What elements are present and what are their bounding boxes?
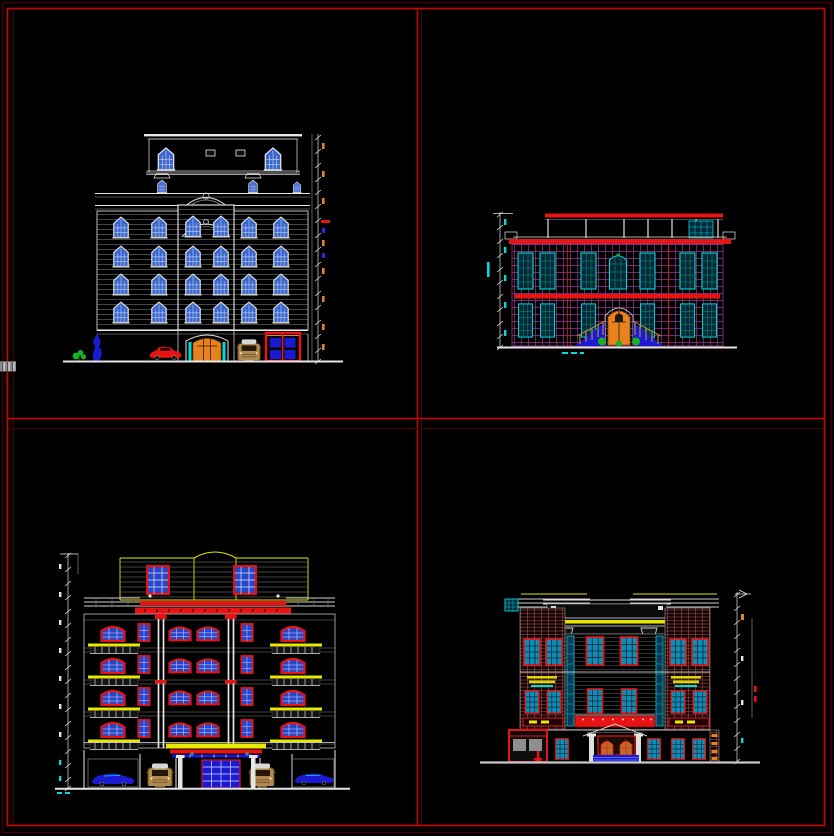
penthouse-window	[147, 566, 169, 594]
parapet-window	[505, 599, 518, 611]
main-body	[84, 614, 335, 750]
blue-car	[92, 774, 134, 786]
mid-band	[515, 294, 720, 299]
ground-floor	[63, 330, 343, 362]
ground-floor	[55, 743, 350, 795]
dimension-labels	[321, 143, 330, 350]
penthouse	[84, 552, 335, 614]
vent	[206, 150, 215, 156]
red-car	[149, 346, 181, 359]
red-cornice	[135, 601, 291, 614]
dimension-labels	[59, 564, 61, 781]
dimension-labels	[741, 614, 757, 743]
elevation-bottom-right	[417, 418, 834, 836]
dimension-labels	[487, 219, 506, 336]
penthouse	[144, 134, 302, 175]
garage	[509, 730, 547, 764]
tan-car	[147, 764, 174, 789]
left-margin-marker	[0, 361, 16, 372]
blue-tree	[93, 333, 102, 361]
columns	[155, 614, 237, 748]
floor-2	[88, 656, 322, 686]
penthouse-window	[157, 148, 175, 171]
cad-canvas[interactable]	[0, 0, 834, 836]
entrance	[186, 335, 228, 361]
floor-1	[88, 624, 322, 654]
base-marks	[57, 792, 70, 794]
entrance-steps	[593, 755, 639, 762]
blue-car	[295, 773, 334, 784]
dimension-line-right	[734, 590, 757, 764]
tan-car	[237, 339, 262, 362]
roof-pergola	[545, 214, 723, 239]
garage-door	[266, 333, 300, 361]
shrub	[73, 350, 87, 361]
penthouse-window	[264, 148, 282, 171]
facade	[512, 244, 723, 347]
dimension-line-right	[312, 134, 330, 364]
ground-window	[672, 739, 685, 759]
stair-bulkhead	[689, 221, 713, 238]
right-pilaster	[710, 730, 719, 762]
vent	[236, 150, 245, 156]
dimension-line-left	[59, 553, 78, 791]
floor-3	[88, 688, 322, 718]
windows-upper	[518, 253, 717, 289]
dimension-line-left	[487, 212, 513, 350]
title-marks	[562, 352, 584, 354]
ground-window	[693, 739, 706, 759]
elevation-top-left	[0, 0, 417, 418]
balcony-banner	[575, 715, 655, 727]
penthouse-window	[234, 566, 256, 594]
elevation-top-right	[417, 0, 834, 418]
ground-window	[556, 739, 569, 759]
ground-window	[648, 739, 661, 759]
entrance-door	[193, 339, 221, 362]
main-facade	[97, 205, 308, 330]
elevation-bottom-left	[0, 418, 417, 836]
